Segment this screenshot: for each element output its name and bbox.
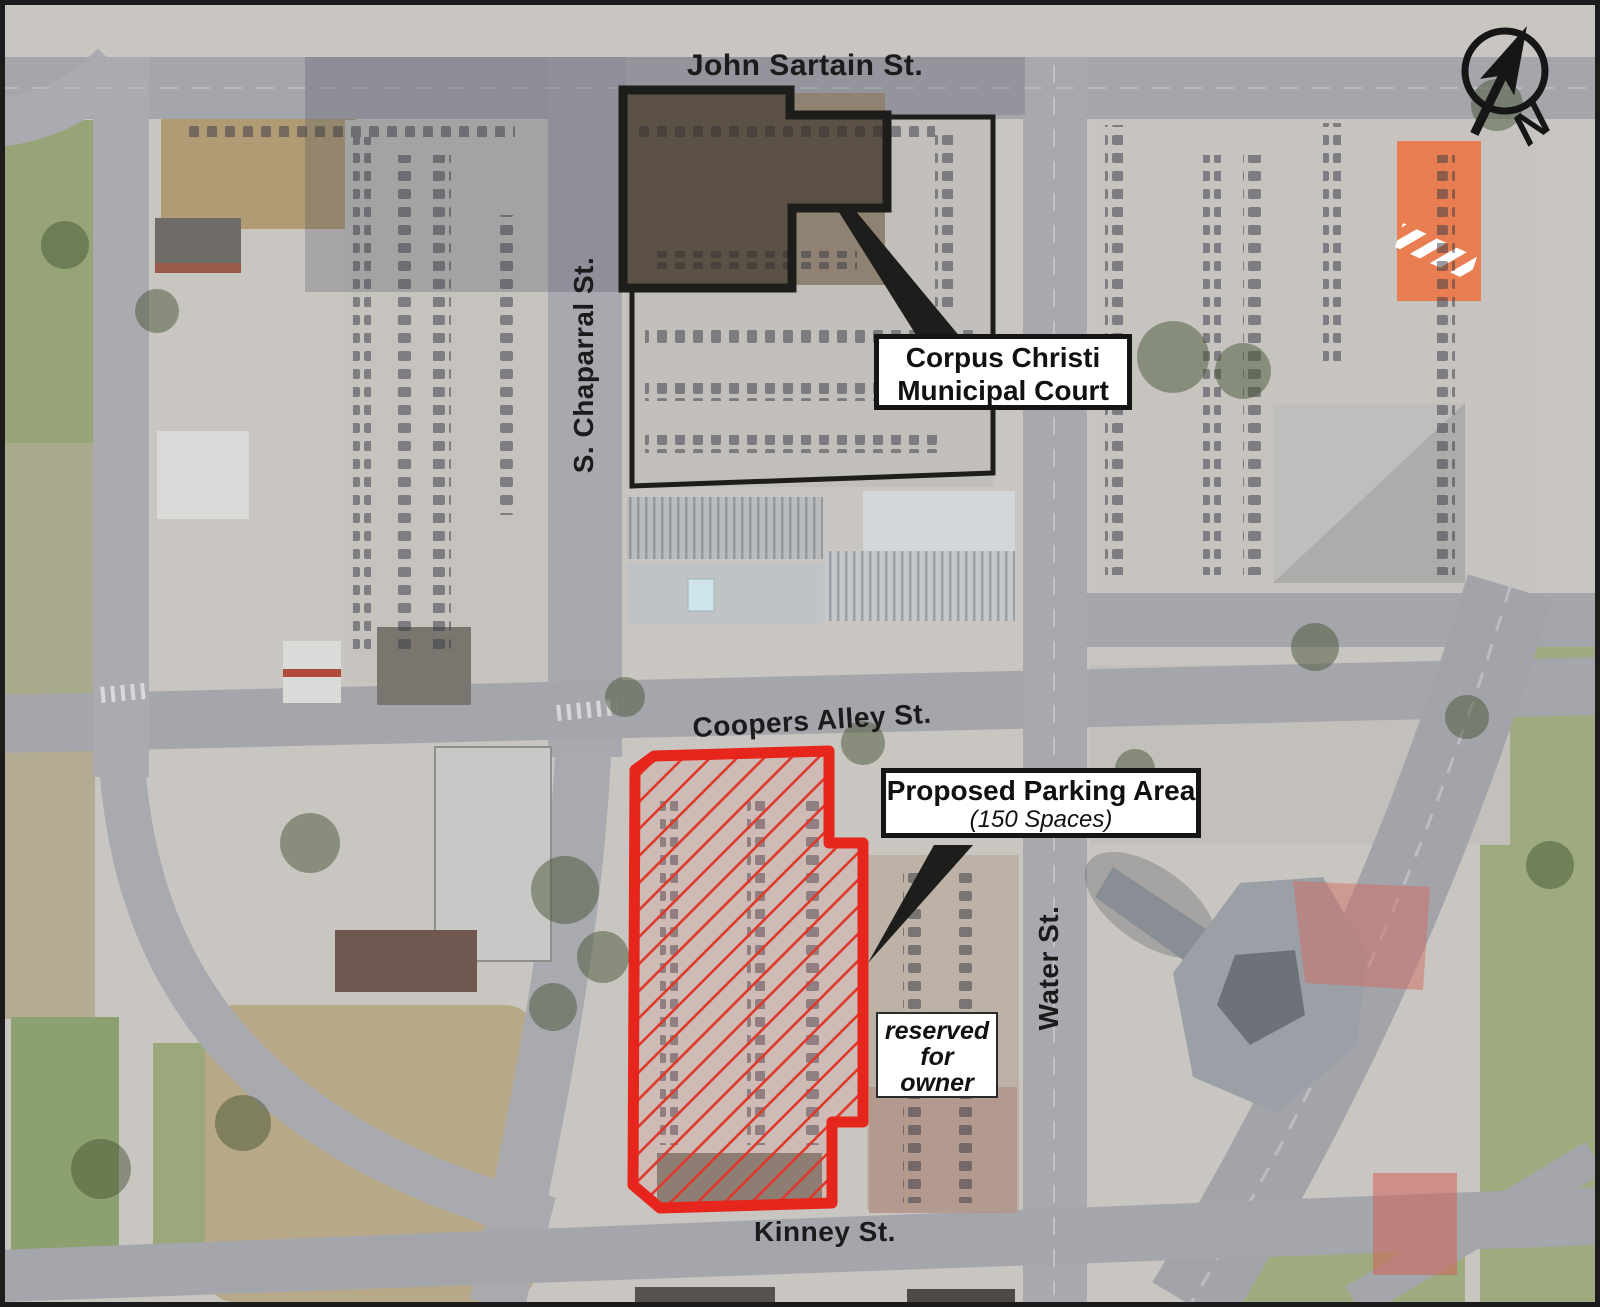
- building-roof: [435, 747, 551, 961]
- car-row: [353, 137, 371, 657]
- car-row: [395, 155, 413, 655]
- tree: [1526, 841, 1574, 889]
- brick-plaza: [869, 1087, 1017, 1213]
- car-row: [935, 135, 953, 315]
- grass-patch: [11, 1017, 119, 1252]
- dirt-patch: [5, 719, 95, 1019]
- red-plaza: [1373, 1173, 1457, 1275]
- site-map-figure: N John Sartain St. S. Chaparral St. Coop…: [0, 0, 1600, 1307]
- skylight: [688, 579, 714, 611]
- warehouse-roof: [627, 563, 823, 625]
- reserved-line3: owner: [878, 1070, 996, 1096]
- parking-callout-subtitle: (150 Spaces): [886, 807, 1196, 833]
- tree: [1215, 343, 1271, 399]
- car-row: [1323, 123, 1341, 363]
- parking-callout-title: Proposed Parking Area: [886, 774, 1196, 807]
- tree: [605, 677, 645, 717]
- tree: [529, 983, 577, 1031]
- building-roof: [335, 930, 477, 992]
- building-edge: [283, 669, 341, 677]
- tree: [577, 931, 629, 983]
- tree: [1137, 321, 1209, 393]
- building-roof: [907, 1289, 1015, 1302]
- red-plaza: [1293, 881, 1430, 990]
- street-label-john-sartain: John Sartain St.: [687, 49, 923, 83]
- tree: [1445, 695, 1489, 739]
- grass-patch: [5, 120, 97, 445]
- car-row: [185, 123, 515, 137]
- street-label-s-chaparral: S. Chaparral St.: [568, 257, 600, 474]
- reserved-line2: for: [878, 1044, 996, 1070]
- building-roof: [635, 1287, 775, 1302]
- street-label-water: Water St.: [1033, 906, 1065, 1031]
- car-row: [1437, 155, 1455, 575]
- reserved-for-owner-callout: reserved for owner: [876, 1012, 998, 1098]
- tree: [1291, 623, 1339, 671]
- aerial-map-canvas: N: [5, 5, 1595, 1302]
- warehouse-roof: [863, 491, 1015, 551]
- reserved-line1: reserved: [878, 1018, 996, 1044]
- car-row: [645, 435, 945, 453]
- car-row: [433, 155, 451, 655]
- road-left: [93, 57, 149, 777]
- roof-ridges: [825, 551, 1015, 621]
- car-row: [497, 215, 515, 515]
- building-roof: [157, 431, 249, 519]
- court-callout-line2: Municipal Court: [897, 375, 1109, 406]
- tree: [531, 856, 599, 924]
- tree: [215, 1095, 271, 1151]
- grass-patch: [5, 443, 93, 721]
- tree: [71, 1139, 131, 1199]
- tree: [41, 221, 89, 269]
- court-callout-line1: Corpus Christi: [906, 342, 1100, 373]
- street-label-kinney: Kinney St.: [754, 1216, 896, 1248]
- proposed-parking-parcel: [633, 751, 863, 1208]
- building-roof: [377, 627, 471, 705]
- building-edge: [155, 263, 241, 273]
- roof-ridges: [627, 497, 823, 559]
- tree: [280, 813, 340, 873]
- proposed-parking-callout: Proposed Parking Area (150 Spaces): [881, 768, 1201, 838]
- municipal-court-callout: Corpus Christi Municipal Court: [874, 334, 1132, 410]
- tree: [135, 289, 179, 333]
